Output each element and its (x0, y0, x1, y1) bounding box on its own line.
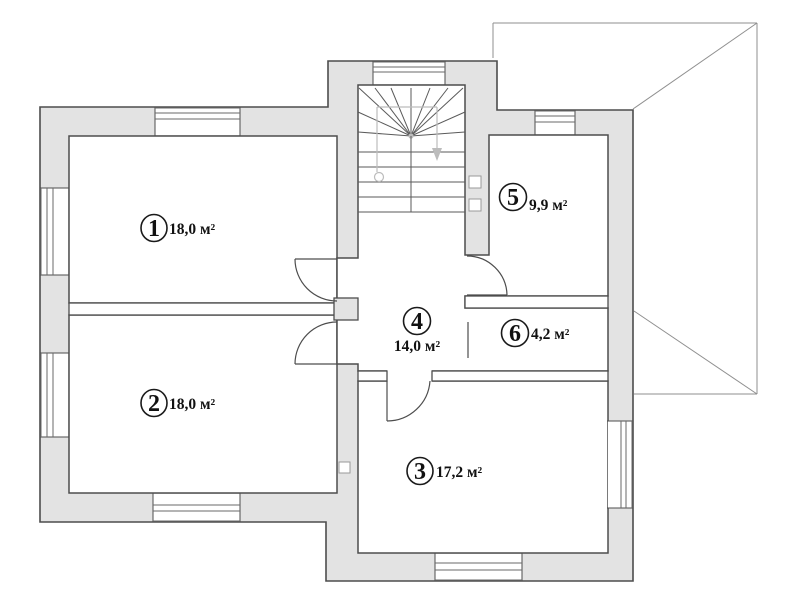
window-bottom-room3 (435, 553, 522, 581)
room-6-number: 6 (509, 321, 521, 347)
wall-pier-hall (334, 298, 358, 320)
vent-shaft-1 (469, 176, 481, 188)
room-6-area: 4,2 м² (531, 326, 570, 343)
room-3-number: 3 (414, 459, 426, 485)
room-4-number: 4 (411, 309, 423, 335)
room-1-number: 1 (148, 216, 160, 242)
doorway-room-3 (387, 370, 432, 382)
wall-hall-room3-left (358, 371, 387, 381)
room-5-area: 9,9 м² (529, 197, 568, 214)
room-2-number: 2 (148, 391, 160, 417)
room-1-region (69, 136, 337, 303)
vent-shaft-3 (339, 462, 350, 473)
window-right-room3 (607, 421, 633, 508)
room-2-area: 18,0 м² (169, 396, 216, 413)
window-bottom-room2 (153, 493, 240, 522)
window-left-room1 (40, 188, 69, 275)
vent-shaft-2 (469, 199, 481, 211)
room-1-area: 18,0 м² (169, 221, 216, 238)
window-top-room5 (535, 110, 575, 135)
room-3-area: 17,2 м² (436, 464, 483, 481)
window-top-room1 (155, 107, 240, 136)
floor-plan-page: 1 18,0 м² 2 18,0 м² 3 17,2 м² 4 14,0 м² … (0, 0, 800, 600)
room-4-area: 14,0 м² (394, 338, 441, 355)
room-3-region (358, 381, 608, 553)
window-stairwell (373, 61, 445, 85)
wall-room5-room6 (465, 296, 608, 308)
wall-room6-room3 (432, 371, 608, 381)
floor-plan-drawing: 1 18,0 м² 2 18,0 м² 3 17,2 м² 4 14,0 м² … (0, 0, 800, 600)
wall-room1-room2 (69, 303, 337, 315)
room-5-number: 5 (507, 185, 519, 211)
window-left-room2 (40, 353, 69, 437)
